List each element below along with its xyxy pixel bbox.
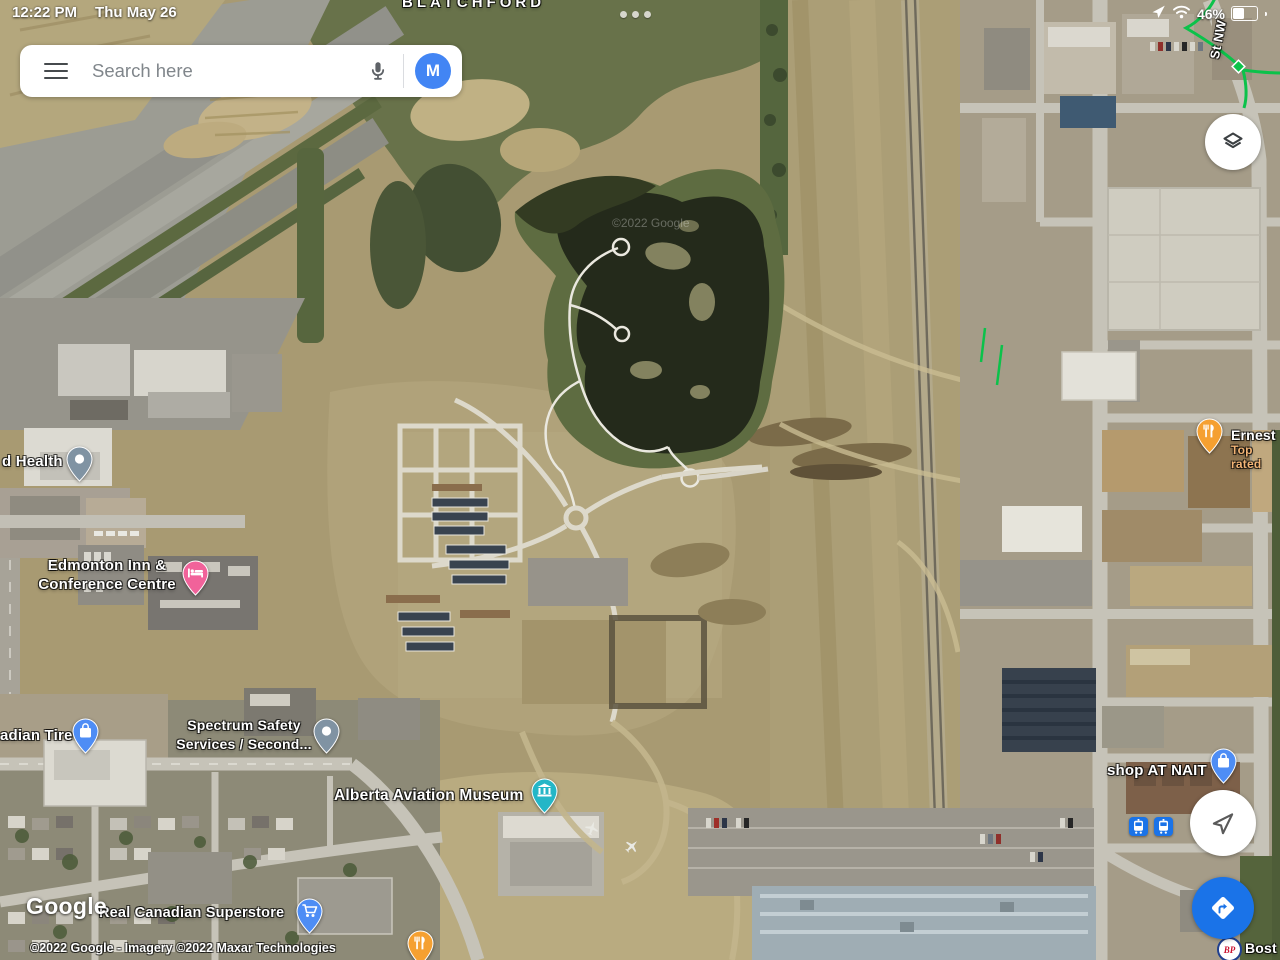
poi-sublabel-ernest: Top rated bbox=[1231, 443, 1280, 471]
google-logo: Google bbox=[26, 893, 107, 920]
voice-search-button[interactable] bbox=[353, 59, 403, 83]
poi-label-boston-pizza[interactable]: Bost bbox=[1245, 939, 1277, 958]
poi-label-superstore[interactable]: Real Canadian Superstore bbox=[99, 904, 284, 923]
directions-button[interactable] bbox=[1192, 877, 1254, 939]
wifi-icon bbox=[1172, 5, 1191, 23]
microphone-icon bbox=[366, 59, 390, 83]
transit-station-icon[interactable] bbox=[1129, 817, 1148, 841]
account-avatar[interactable]: M bbox=[415, 53, 451, 89]
dot-icon bbox=[75, 454, 84, 463]
layers-button[interactable] bbox=[1205, 114, 1261, 170]
satellite-map[interactable] bbox=[0, 0, 1280, 960]
poi-pin-ernest[interactable] bbox=[1196, 418, 1223, 454]
boston-pizza-logo[interactable]: BP bbox=[1217, 937, 1242, 960]
imagery-watermark: ©2022 Google bbox=[612, 216, 690, 230]
poi-pin-aviation-museum[interactable] bbox=[531, 778, 558, 814]
transit-station-icon[interactable] bbox=[1154, 817, 1173, 841]
poi-label-aviation-museum[interactable]: Alberta Aviation Museum bbox=[334, 786, 523, 805]
poi-pin-edmonton-inn[interactable] bbox=[182, 560, 209, 596]
copyright-text: ©2022 Google - Imagery ©2022 Maxar Techn… bbox=[30, 941, 336, 955]
battery-percent: 46% bbox=[1197, 6, 1225, 22]
my-location-button[interactable] bbox=[1190, 790, 1256, 856]
poi-pin-spectrum[interactable] bbox=[313, 718, 340, 754]
poi-label-edmonton-inn[interactable]: Edmonton Inn & Conference Centre bbox=[28, 556, 186, 594]
clock: 12:22 PM bbox=[12, 4, 77, 21]
poi-label-canadian-tire[interactable]: adian Tire bbox=[0, 726, 73, 745]
search-input[interactable] bbox=[90, 59, 353, 83]
poi-pin-shop-at-nait[interactable] bbox=[1210, 748, 1237, 784]
poi-pin-unnamed-restaurant[interactable] bbox=[407, 930, 434, 960]
dot-icon bbox=[322, 726, 331, 735]
poi-pin-superstore[interactable] bbox=[296, 898, 323, 934]
google-maps-app: BLATCHFORD St NW ©2022 Google d Health E… bbox=[0, 0, 1280, 960]
location-services-icon bbox=[1151, 4, 1166, 23]
turn-right-icon bbox=[1208, 893, 1238, 923]
battery-icon bbox=[1231, 6, 1258, 21]
poi-label-spectrum[interactable]: Spectrum Safety Services / Second... bbox=[166, 716, 322, 754]
navigation-arrow-icon bbox=[1208, 808, 1238, 838]
status-bar: 12:22 PM Thu May 26 46% bbox=[0, 0, 1280, 26]
menu-button[interactable] bbox=[44, 63, 68, 80]
poi-label-health[interactable]: d Health bbox=[2, 452, 63, 471]
date: Thu May 26 bbox=[95, 4, 177, 21]
search-bar: M bbox=[20, 45, 462, 97]
poi-pin-canadian-tire[interactable] bbox=[72, 718, 99, 754]
divider bbox=[403, 54, 404, 88]
layers-icon bbox=[1220, 129, 1246, 155]
poi-label-shop-at-nait[interactable]: shop AT NAIT bbox=[1107, 761, 1207, 780]
poi-pin-health[interactable] bbox=[66, 446, 93, 482]
